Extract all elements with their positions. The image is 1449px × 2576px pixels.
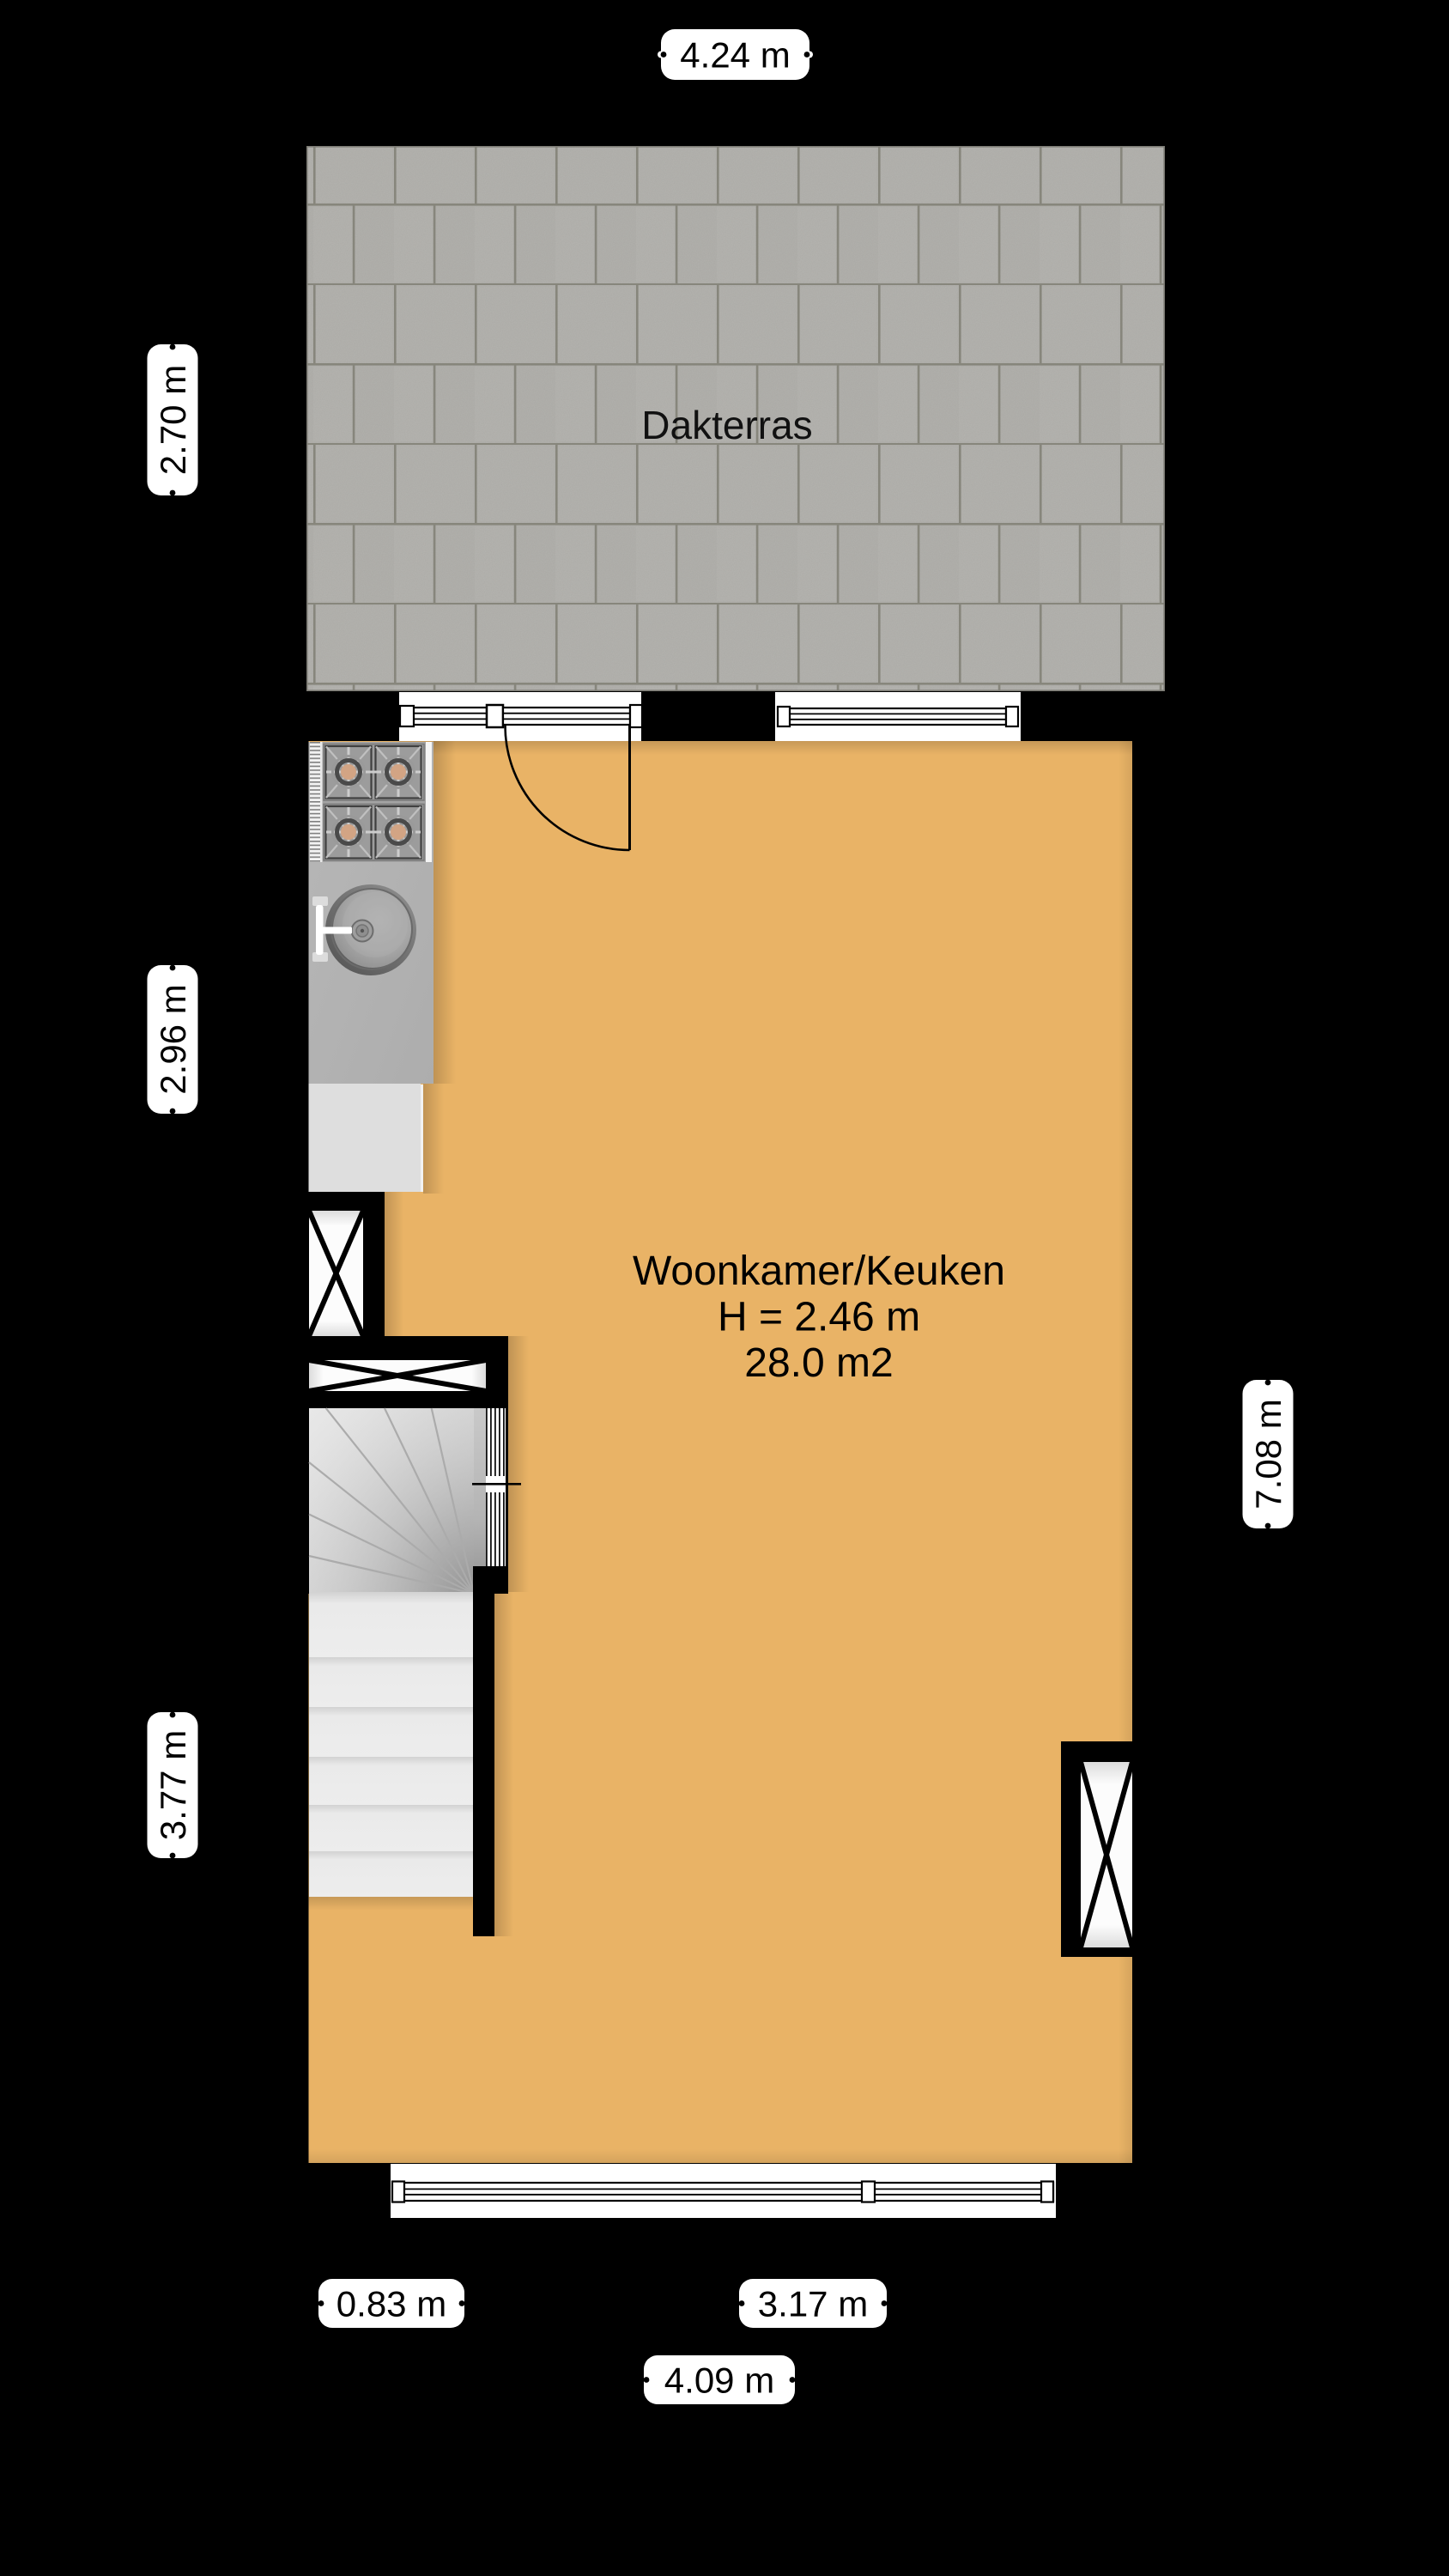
svg-text:3.17 m: 3.17 m bbox=[758, 2284, 868, 2324]
svg-text:4.09 m: 4.09 m bbox=[664, 2360, 774, 2401]
svg-text:Dakterras: Dakterras bbox=[641, 403, 812, 447]
svg-text:Woonkamer/Keuken: Woonkamer/Keuken bbox=[633, 1249, 1005, 1294]
svg-text:28.0 m2: 28.0 m2 bbox=[744, 1340, 893, 1386]
svg-text:3.77 m: 3.77 m bbox=[153, 1730, 193, 1840]
svg-text:4.24 m: 4.24 m bbox=[680, 35, 790, 76]
svg-text:0.83 m: 0.83 m bbox=[336, 2284, 446, 2324]
svg-text:2.96 m: 2.96 m bbox=[153, 984, 193, 1094]
svg-text:H = 2.46 m: H = 2.46 m bbox=[718, 1295, 920, 1340]
svg-text:7.08 m: 7.08 m bbox=[1248, 1399, 1288, 1509]
svg-text:2.70 m: 2.70 m bbox=[153, 365, 193, 475]
